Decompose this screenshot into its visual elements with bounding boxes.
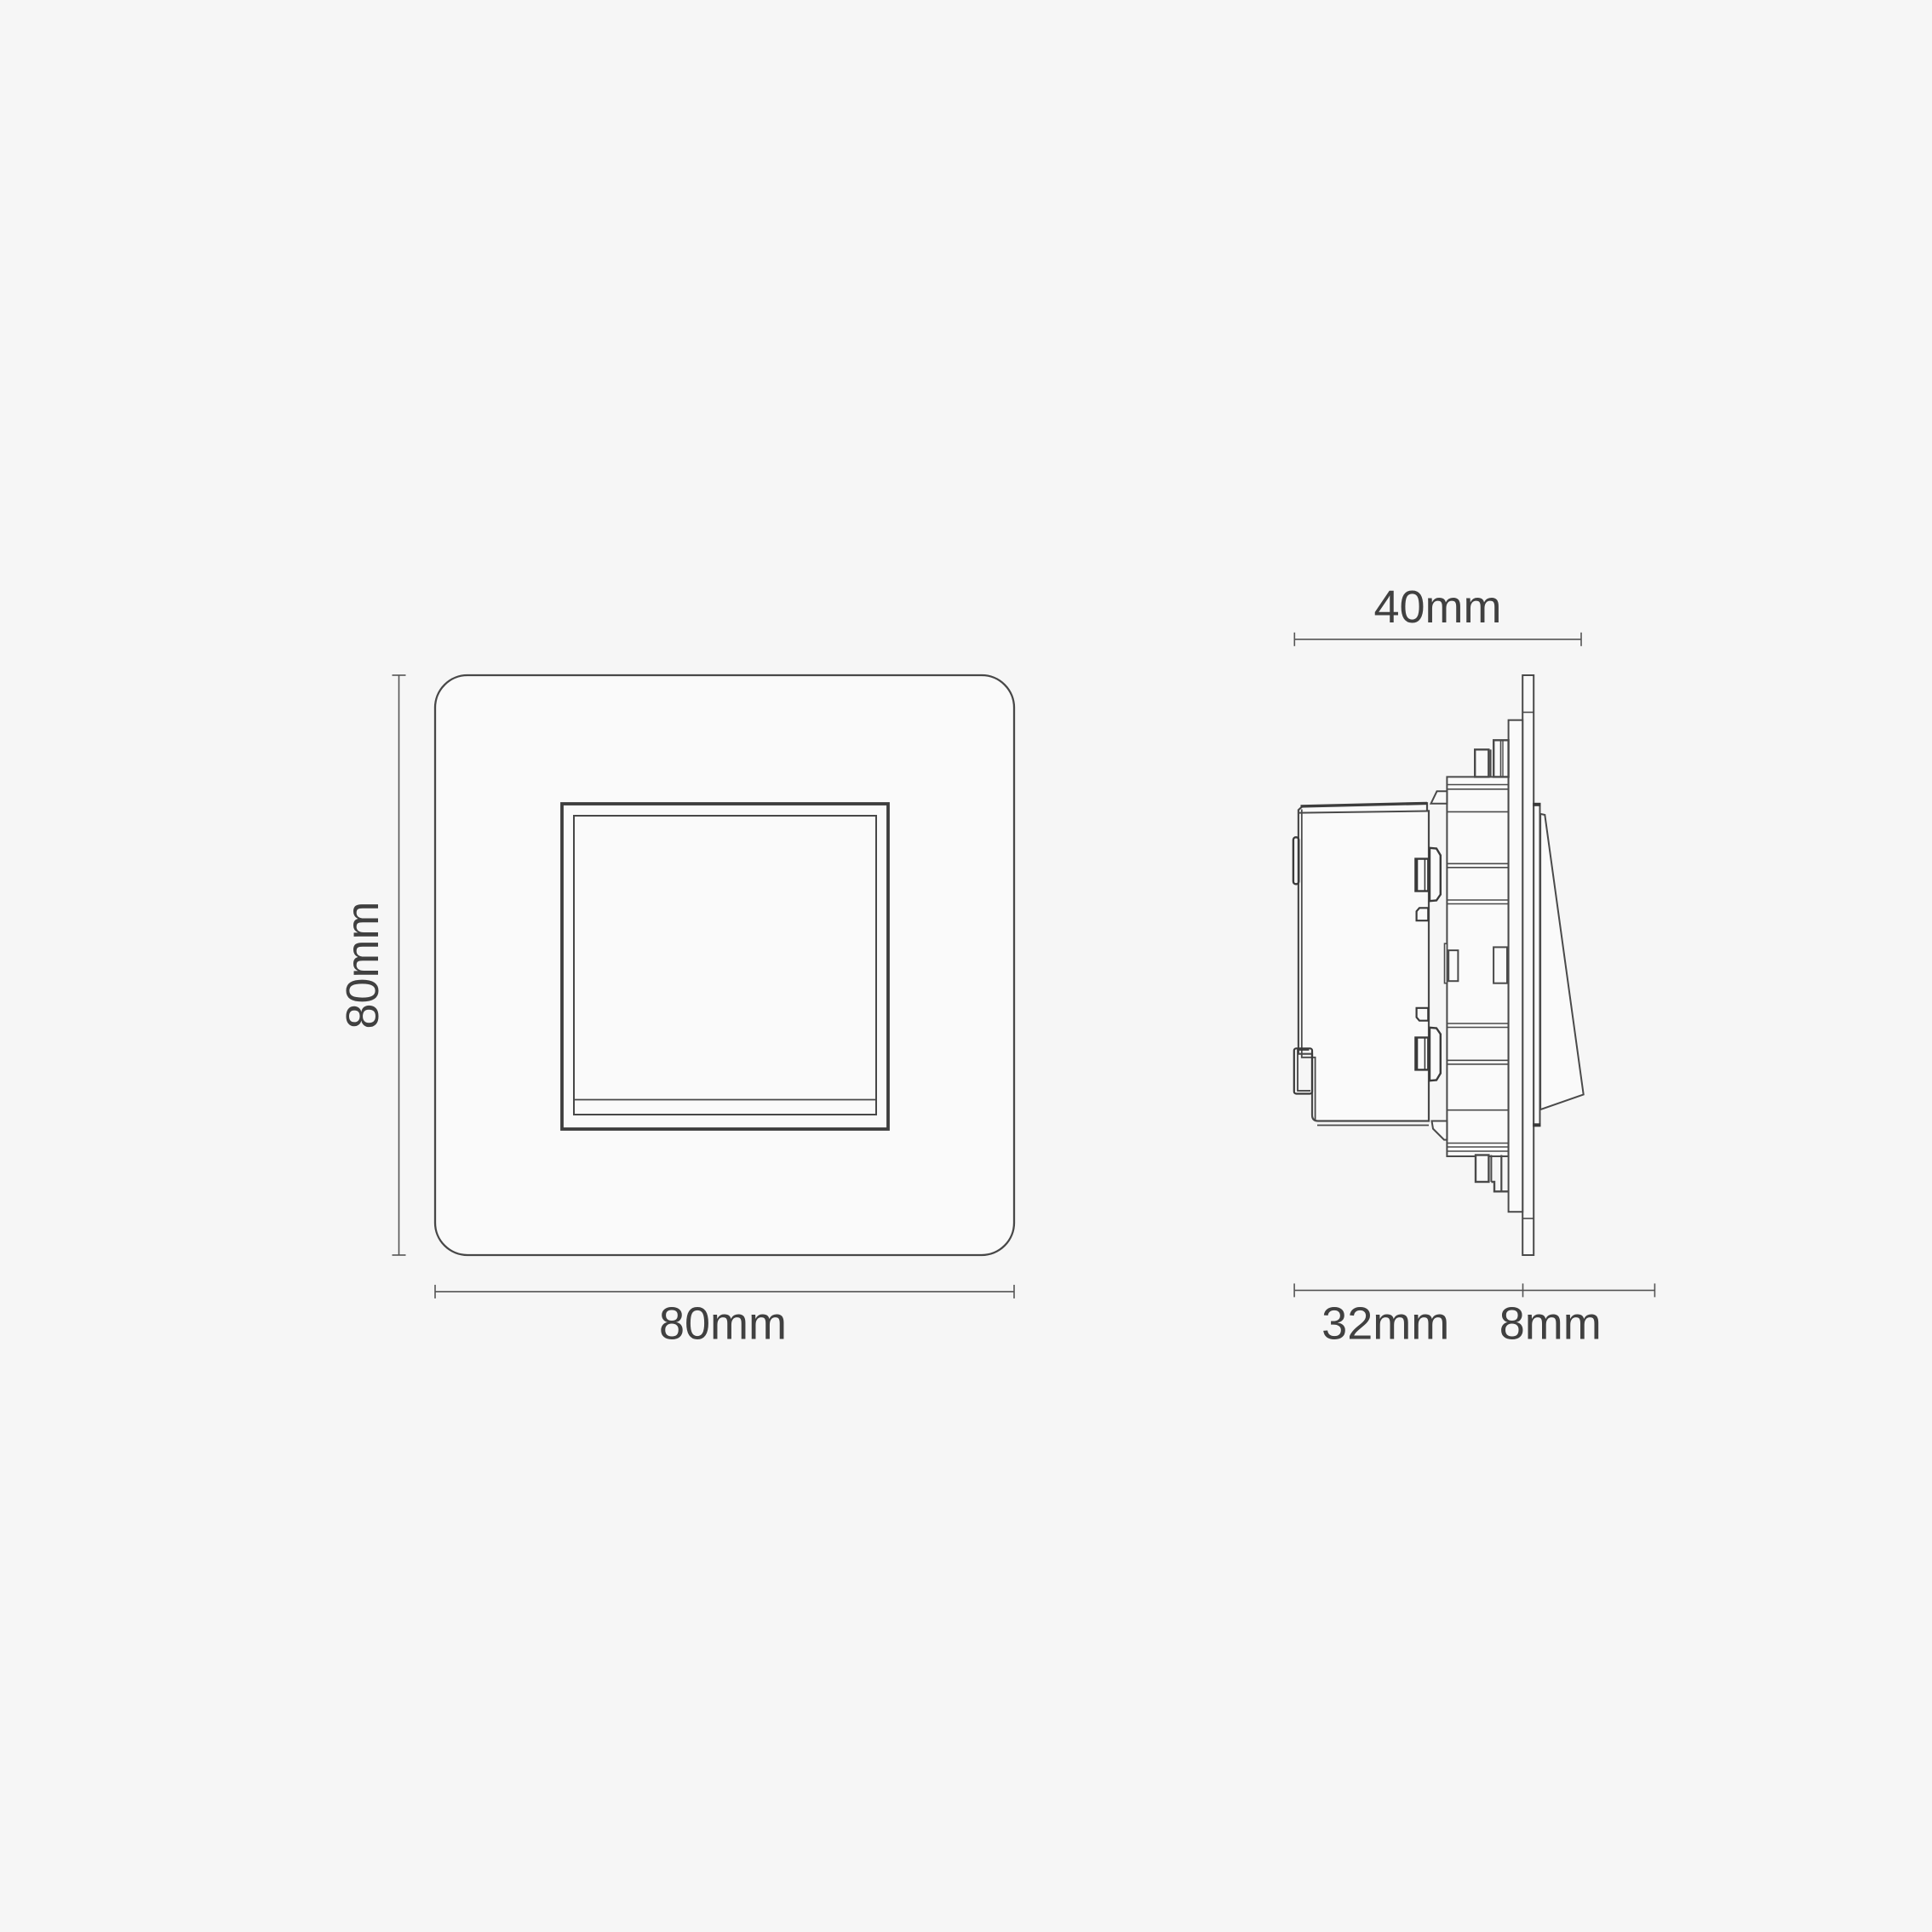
svg-text:40mm: 40mm (1373, 582, 1501, 633)
svg-text:8mm: 8mm (1499, 1299, 1602, 1350)
svg-text:80mm: 80mm (337, 901, 388, 1029)
svg-text:80mm: 80mm (659, 1299, 787, 1350)
svg-text:32mm: 32mm (1321, 1299, 1449, 1350)
